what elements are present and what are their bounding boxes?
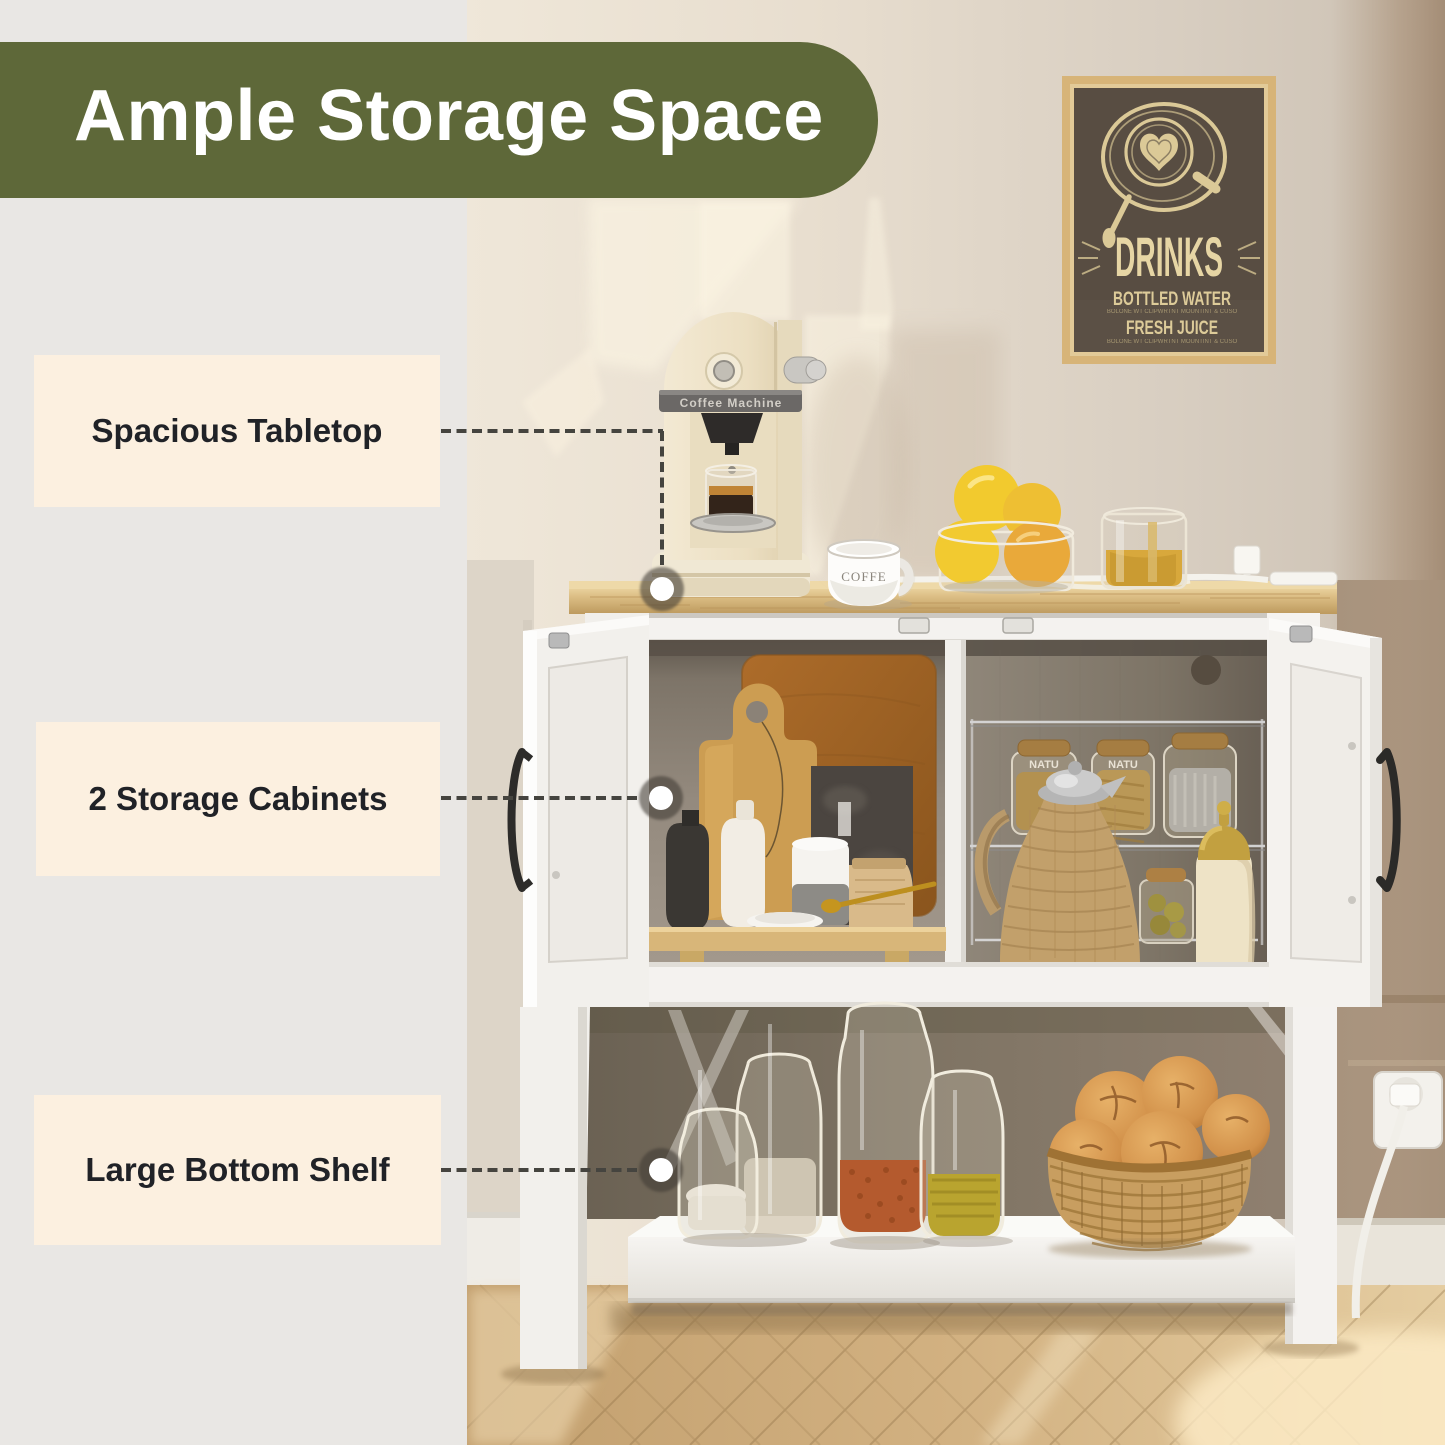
svg-text:COFFE: COFFE xyxy=(841,569,886,584)
svg-text:Coffee Machine: Coffee Machine xyxy=(680,396,783,410)
svg-text:NATU: NATU xyxy=(1029,759,1059,771)
svg-text:DRINKS: DRINKS xyxy=(1115,225,1223,288)
svg-text:BOLONE WT CLIPWRTNT MOUNTINT &: BOLONE WT CLIPWRTNT MOUNTINT & CUSO xyxy=(1107,309,1238,315)
svg-text:FRESH JUICE: FRESH JUICE xyxy=(1126,318,1218,339)
svg-text:NATU: NATU xyxy=(1108,759,1138,771)
svg-text:BOTTLED WATER: BOTTLED WATER xyxy=(1113,289,1231,310)
svg-text:BOLONE WT CLIPWRTNT MOUNTINT &: BOLONE WT CLIPWRTNT MOUNTINT & CUSO xyxy=(1107,339,1238,345)
